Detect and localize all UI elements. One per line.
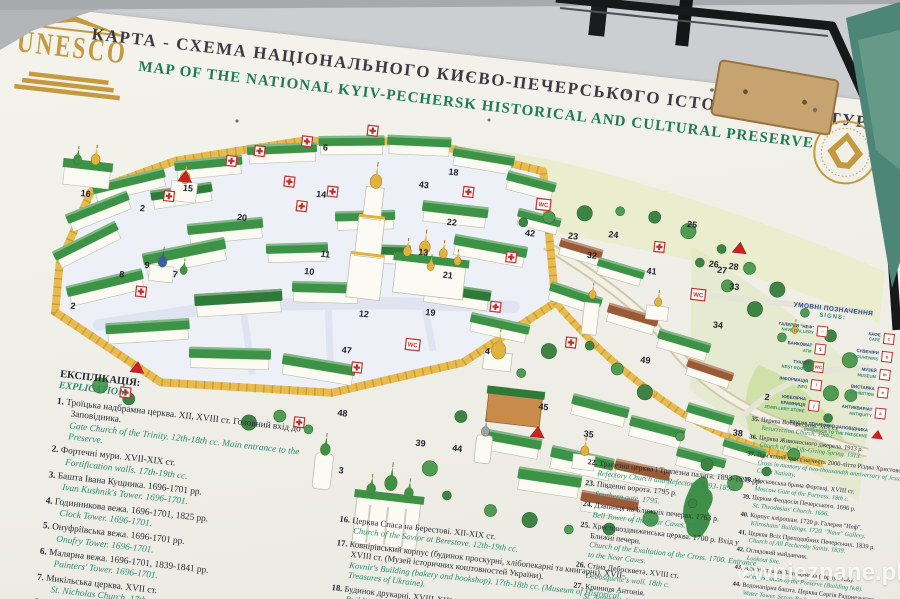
map-number-label: 49 [640, 355, 651, 366]
legend-row: ІНФОРМАЦІЯINFOi [760, 373, 822, 391]
map-number-label: 47 [341, 345, 352, 356]
map-pictogram-icon [654, 241, 665, 252]
map-number-label: 39 [415, 438, 426, 449]
svg-text:WC: WC [693, 292, 704, 299]
map-number-label: 11 [320, 249, 331, 260]
map-number-label: 27 [717, 265, 728, 276]
legend-pictogram-icon: s [881, 351, 893, 363]
map-pictogram-icon [463, 186, 474, 197]
legend-row: МУЗЕЙMUSEUMm [829, 363, 891, 381]
map-pictogram-icon [254, 146, 265, 157]
map-pictogram-icon [367, 125, 378, 136]
svg-text:WC: WC [538, 202, 549, 209]
legend-row: СУВЕНІРИSOUVENIRSs [831, 345, 893, 363]
legend-pictogram-icon: WC [812, 361, 824, 373]
map-number-label: 45 [538, 401, 549, 412]
map-number-label: 15 [182, 183, 193, 194]
map-number-label: 23 [568, 231, 579, 242]
map-number-label: 35 [583, 429, 594, 440]
map-number-label: 19 [425, 307, 436, 318]
map-pictogram-icon [302, 136, 313, 147]
map-pictogram-icon [296, 201, 307, 212]
legend-row: ВИСТАВКАEXHIBITIONe [827, 381, 889, 399]
wc-icon: WC [536, 198, 551, 211]
map-number-label: 14 [316, 189, 327, 200]
map-number-label: 13 [418, 247, 429, 258]
map-pictogram-icon [284, 176, 295, 187]
map-pictogram-icon [351, 362, 362, 373]
legend-pictogram-icon: e [877, 387, 889, 399]
map-number-label: 10 [304, 266, 315, 277]
map-number-label: 44 [452, 443, 463, 454]
legend-row: БАНКОМАТATM$ [765, 337, 827, 355]
wc-icon: WC [405, 338, 420, 351]
map-number-label: 16 [80, 188, 91, 199]
map-pictogram-icon [135, 286, 146, 297]
watermark-text: wnieznane.pl [754, 559, 900, 587]
map-pictogram-icon [327, 186, 338, 197]
map-number-label: 43 [418, 179, 429, 190]
legend-row: ГАЛЕРЕЯ "НЕФ"NAVE GALLERY∩ [767, 319, 829, 337]
map-number-label: 18 [448, 167, 459, 178]
legend-pictogram-icon: ∩ [816, 325, 828, 337]
map-number-label: 22 [446, 217, 457, 228]
svg-text:WC: WC [407, 342, 418, 349]
legend-pictogram-icon: c [883, 333, 895, 345]
map-number-label: 33 [729, 281, 740, 292]
map-number-label: 34 [712, 320, 723, 331]
map-pictogram-icon [506, 252, 517, 263]
map-number-label: 41 [646, 266, 657, 277]
legend-row: ЮВЕЛІРНА КРАМНИЦЯJEWELLERY STOREj [758, 392, 821, 416]
watermark-logo-icon [738, 545, 754, 599]
map-pictogram-icon [565, 337, 576, 348]
map-number-label: 32 [586, 250, 597, 261]
map-number-label: 48 [337, 408, 348, 419]
legend-row: ТУАЛЕТREST ROOMSWC [763, 355, 825, 373]
legend-pictogram-icon: j [808, 400, 820, 412]
legend-pictogram-icon: m [879, 369, 891, 381]
wc-icon: WC [691, 288, 706, 301]
map-sign-board: UNESCO КАРТА - СХЕМА НАЦІОНАЛЬНОГО КИЄВО… [0, 0, 900, 599]
map-pictogram-icon [226, 155, 237, 166]
map-number-label: 28 [728, 261, 739, 272]
map-number-label: 21 [442, 270, 453, 281]
map-number-label: 25 [687, 219, 698, 230]
map-number-label: 24 [608, 229, 619, 240]
entrance-triangle-icon [530, 426, 545, 439]
map-pictogram-icon [490, 301, 501, 312]
explication-column-1: ЕКСПЛІКАЦІЯ: EXPLICATION: 1. Троїцька на… [32, 369, 331, 599]
legend-pictogram-icon: i [810, 379, 822, 391]
map-number-label: 38 [732, 427, 743, 438]
legend-pictogram-icon: a [874, 408, 886, 420]
watermark: wnieznane.pl [738, 543, 900, 599]
map-number-label: 12 [358, 308, 369, 319]
map-number-label: 3 [338, 465, 344, 476]
map-number-label: 20 [236, 212, 247, 223]
photo-of-map-sign: { "header": { "unesco_logo": "UNESCO", "… [0, 0, 900, 599]
map-number-label: 42 [525, 228, 536, 239]
legend-pictogram-icon: $ [814, 343, 826, 355]
map-pictogram-icon [163, 191, 174, 202]
legend-row: АНТИКВАРІАТANTIQUITYa [824, 399, 887, 423]
legend-row: КАФЕCAFEc [833, 327, 895, 345]
